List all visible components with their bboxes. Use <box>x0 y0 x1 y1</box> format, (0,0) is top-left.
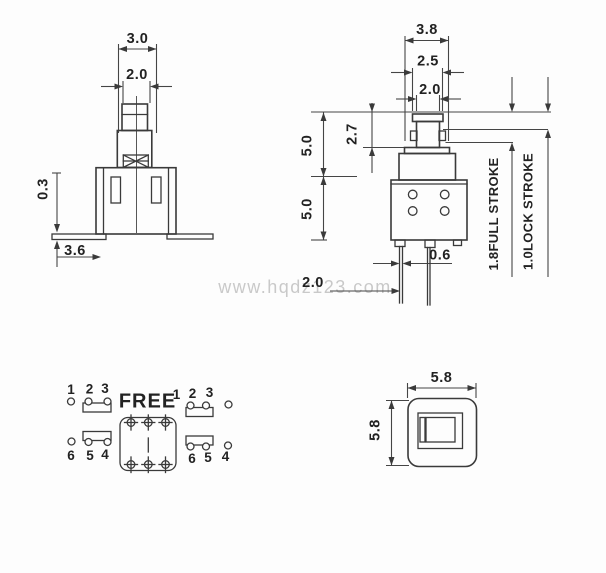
top-view-keyway <box>420 418 425 443</box>
pinout-diagrams: 1 2 3 6 5 4 FREE <box>67 381 232 473</box>
pin-label: 5 <box>86 448 94 463</box>
front-foot-left <box>52 234 106 240</box>
dim-label-neck-width: 2.0 <box>419 82 441 98</box>
top-view: 5.8 5.8 <box>368 370 477 467</box>
free-state-label: FREE <box>119 391 176 413</box>
front-spring-box <box>123 155 148 167</box>
pin-circle-open <box>68 438 75 445</box>
pin-label: 1 <box>67 382 75 397</box>
side-pins <box>400 247 431 306</box>
pin-circle <box>85 439 92 446</box>
side-tab-right <box>454 240 462 246</box>
pin-label: 5 <box>204 450 212 465</box>
pin-circle <box>187 402 194 409</box>
pin-label: 1 <box>173 387 181 402</box>
pin-circle <box>187 443 194 450</box>
side-tab-middle <box>425 240 435 248</box>
front-view: 3.0 2.0 0.3 3.6 <box>36 31 214 267</box>
dim-label-body-height: 5.0 <box>300 198 316 220</box>
pin-circle-open <box>68 398 75 405</box>
side-tab-left <box>395 240 405 247</box>
pinout-free-group: 1 2 3 6 5 4 <box>173 385 232 466</box>
lock-stroke-label: 1.0LOCK STROKE <box>521 153 536 270</box>
front-body <box>96 168 176 234</box>
pin-label: 6 <box>188 451 196 466</box>
pin-label: 3 <box>101 381 109 396</box>
dim-label-foot-thickness: 0.3 <box>36 178 52 200</box>
front-stem <box>122 104 148 131</box>
pin-circle-open <box>225 442 232 449</box>
pin-label: 2 <box>86 382 94 397</box>
dim-label-pin-offset: 2.0 <box>302 275 324 291</box>
dim-label-base-width: 3.6 <box>64 243 86 259</box>
side-stem-neck <box>417 122 440 148</box>
side-stem-flange <box>405 148 450 154</box>
full-stroke-label: 1.8FULL STROKE <box>486 157 501 270</box>
side-body-holes <box>408 190 449 215</box>
pin-circle-open <box>225 401 232 408</box>
pin-label: 3 <box>206 385 214 400</box>
top-view-stem <box>426 418 455 443</box>
pin-circle <box>85 398 92 405</box>
pin-label: 2 <box>189 386 197 401</box>
pin-label: 4 <box>222 449 230 464</box>
side-view: 3.8 2.5 2.0 2.7 5.0 5.0 1.8FULL STROKE 1… <box>300 22 552 305</box>
pin-circle <box>203 443 210 450</box>
dim-label-stem-exposed: 2.7 <box>345 123 361 145</box>
switch-datasheet-drawing: www.hqdz123.com <box>0 0 606 573</box>
dim-label-upper-height: 5.0 <box>300 135 316 157</box>
dim-label-flange-width: 3.8 <box>416 22 438 38</box>
dim-label-top-width: 3.0 <box>127 31 149 47</box>
dim-label-cap-width: 2.5 <box>417 54 439 70</box>
pinout-locked-group: 1 2 3 6 5 4 <box>67 381 111 463</box>
front-slot-left <box>111 177 121 203</box>
side-stem-cap <box>413 114 444 122</box>
footprint-pin-crosshairs <box>125 415 173 473</box>
pin-circle <box>104 439 111 446</box>
pin-circle <box>203 402 210 409</box>
side-upper-housing <box>399 154 456 181</box>
pin-circle <box>104 398 111 405</box>
footprint-diagram <box>120 415 176 473</box>
drawing-canvas: www.hqdz123.com <box>0 0 606 573</box>
pin-label: 6 <box>67 448 75 463</box>
pin-label: 4 <box>101 447 109 462</box>
front-view-switch-outline <box>52 104 213 240</box>
side-body <box>391 180 467 240</box>
dim-label-top-view-height: 5.8 <box>368 419 384 441</box>
top-view-outline <box>408 399 477 467</box>
front-slot-right <box>152 177 162 203</box>
dim-label-pin-width: 0.6 <box>429 248 451 264</box>
dim-label-stem-width: 2.0 <box>126 67 148 83</box>
dim-label-top-view-width: 5.8 <box>431 370 453 386</box>
